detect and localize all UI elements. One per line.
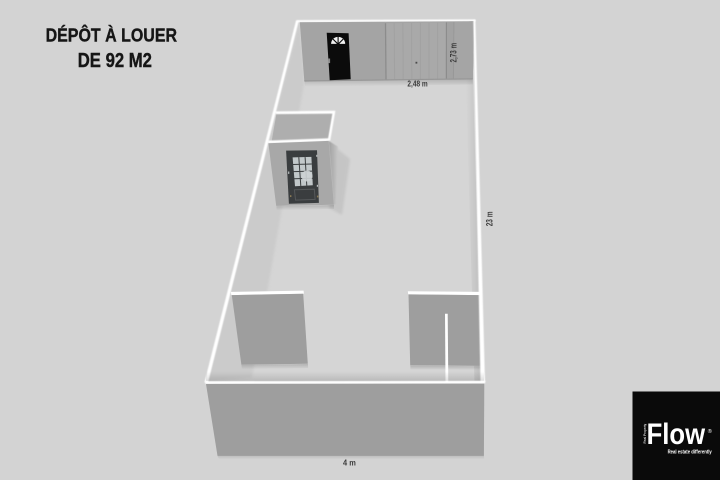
svg-text:23 m: 23 m [484,212,494,227]
svg-text:Real estate differently: Real estate differently [668,449,712,456]
svg-text:Flow: Flow [647,417,706,450]
svg-text:2,73 m: 2,73 m [448,43,459,63]
svg-text:Real Property: Real Property [643,424,647,444]
svg-text:DE 92 M2: DE 92 M2 [78,48,152,71]
svg-text:2,48 m: 2,48 m [407,79,428,89]
svg-text:DÉPÔT À LOUER: DÉPÔT À LOUER [46,23,178,46]
svg-text:4 m: 4 m [343,458,356,467]
svg-text:®: ® [708,428,712,435]
